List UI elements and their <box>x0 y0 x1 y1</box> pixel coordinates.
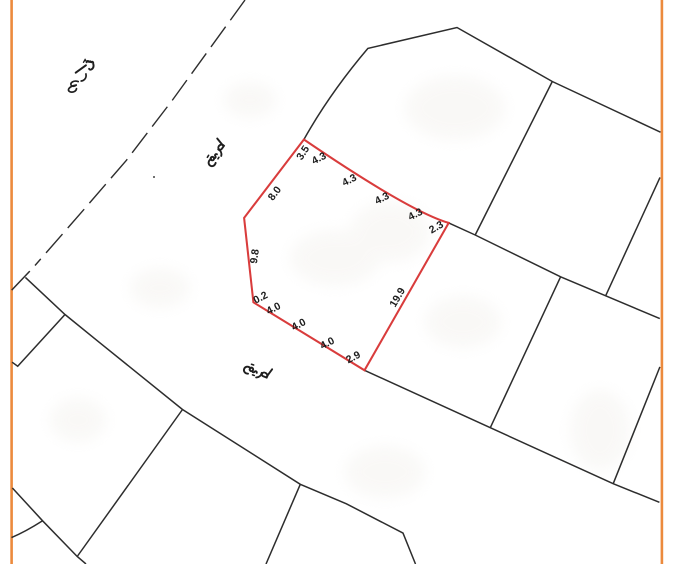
svg-text:9.8: 9.8 <box>248 248 262 264</box>
